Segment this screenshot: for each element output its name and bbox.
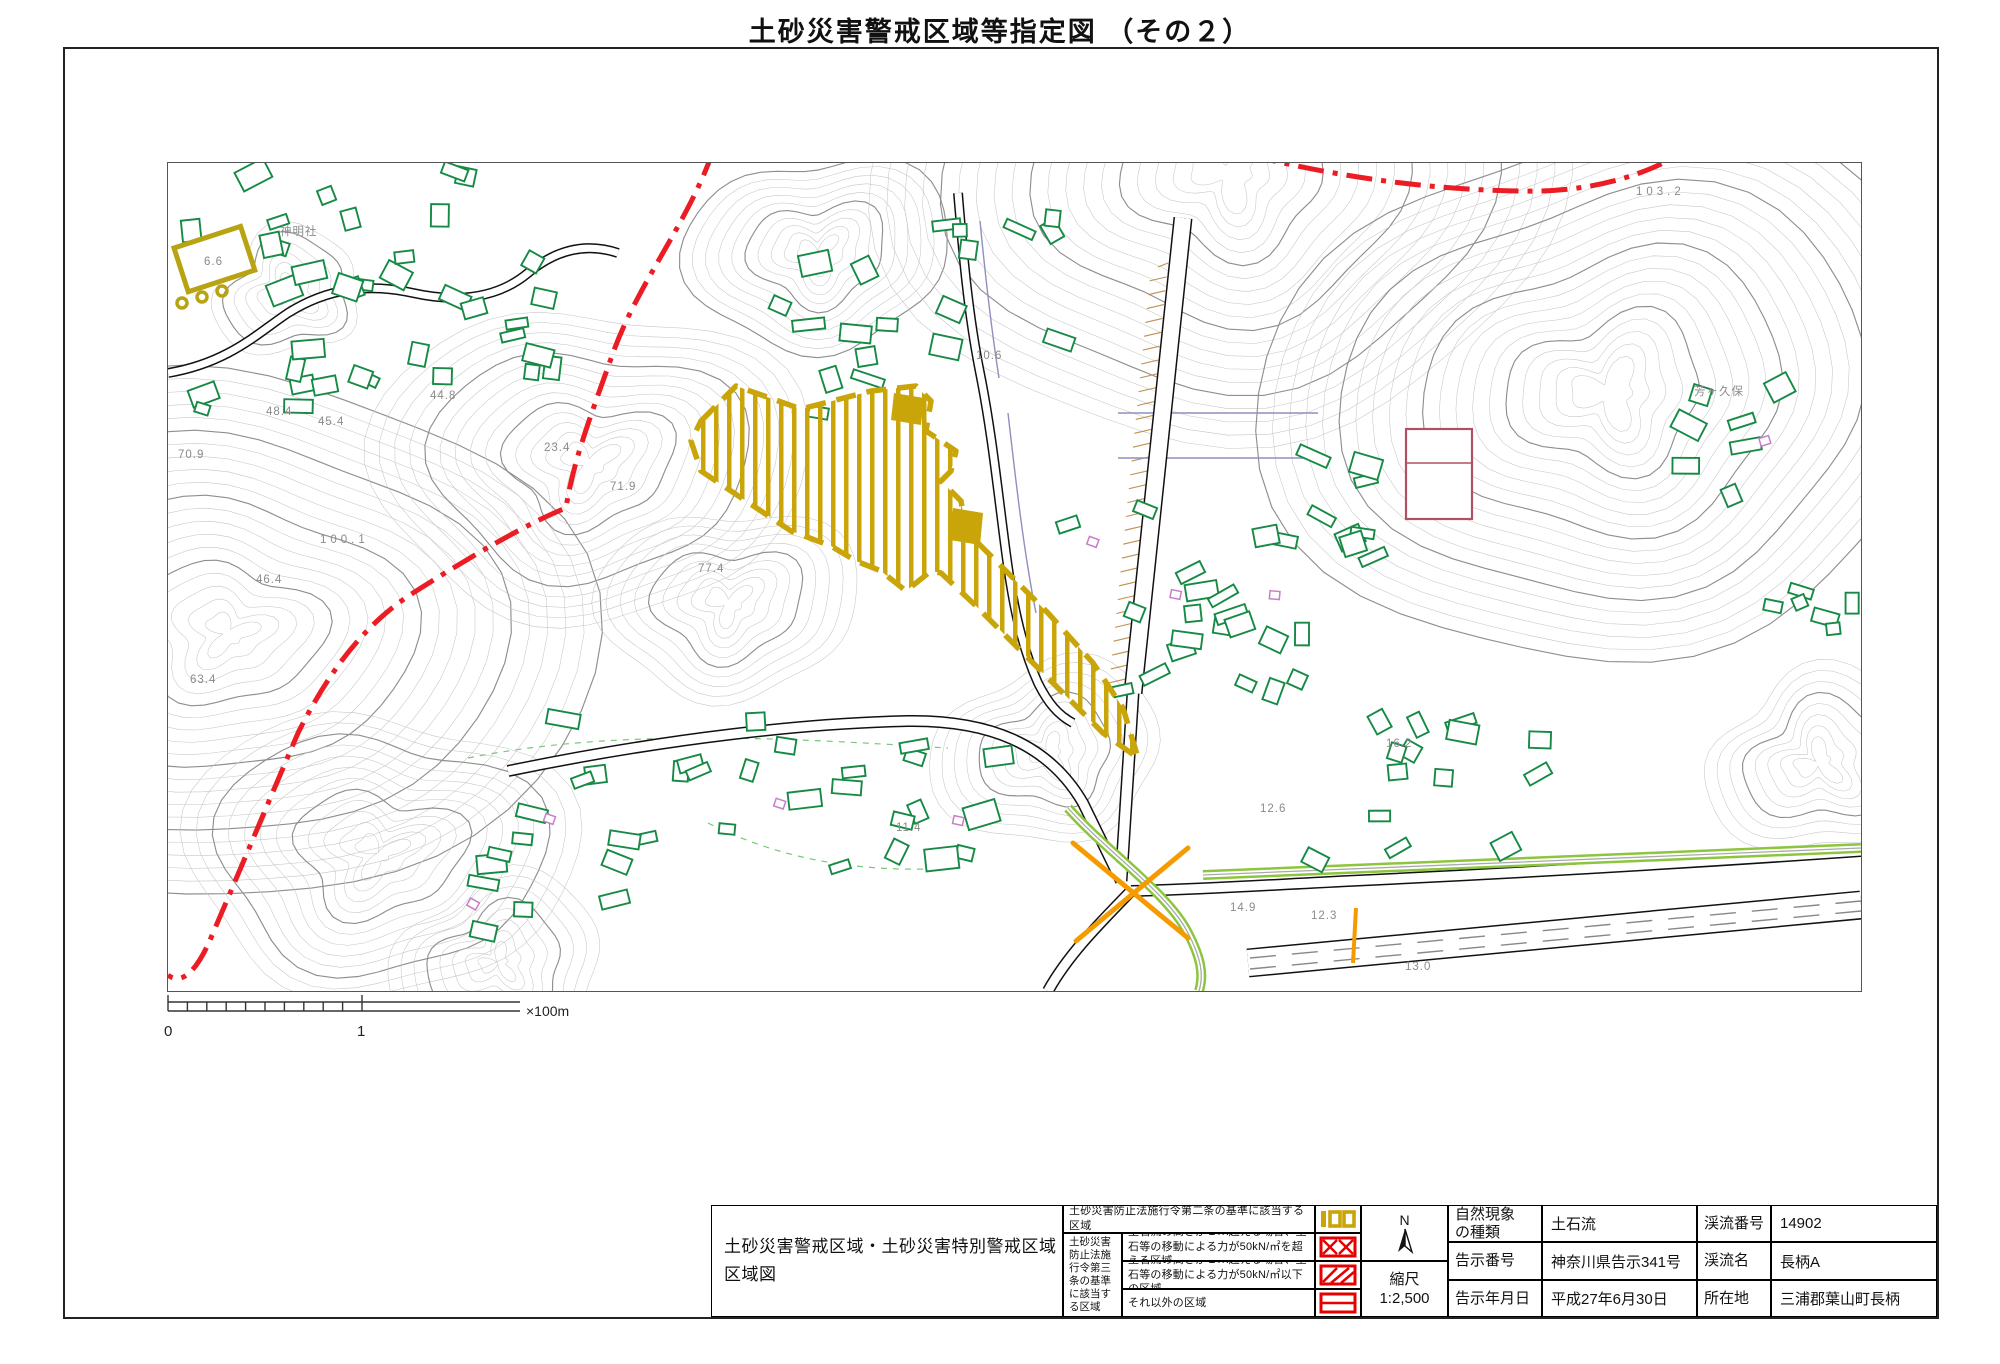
scale-bar: 0 1 ×100m xyxy=(160,992,600,1044)
notice-number-value: 神奈川県告示341号 xyxy=(1542,1242,1697,1280)
stream-number-label: 渓流番号 xyxy=(1697,1205,1771,1242)
diagonal-swatch-icon xyxy=(1319,1264,1357,1286)
map-label: 12.6 xyxy=(1260,803,1286,815)
north-arrow-icon xyxy=(1394,1228,1416,1254)
page-title: 土砂災害警戒区域等指定図 （その２） xyxy=(0,10,2000,49)
map-label: 63.4 xyxy=(190,674,216,686)
stream-number-value: 14902 xyxy=(1771,1205,1937,1242)
map-label: 23.4 xyxy=(544,442,570,454)
notice-date-label: 告示年月日 xyxy=(1448,1280,1542,1317)
north-arrow-cell: N xyxy=(1361,1205,1448,1261)
map-label: 44.8 xyxy=(430,390,456,402)
map-label: 100.1 xyxy=(320,534,369,546)
topographic-map: 103.2芳ヶ久保神明社6.648.445.444.870.9100.146.4… xyxy=(167,162,1862,992)
scale-zero-label: 0 xyxy=(164,1023,172,1040)
map-label: 45.4 xyxy=(318,416,344,428)
map-label: 11.4 xyxy=(896,822,922,834)
map-label: 10.6 xyxy=(976,350,1002,362)
map-label: 13.0 xyxy=(1405,961,1431,973)
crosshatch-swatch-icon xyxy=(1319,1236,1357,1258)
legend-info-table: 土砂災害警戒区域・土砂災害特別警戒区域 区域図 土砂災害防止法施行令第二条の基準… xyxy=(711,1205,1937,1317)
swatch-diagonal-hatch xyxy=(1315,1261,1361,1289)
map-label: 12.3 xyxy=(1311,910,1337,922)
legend-other-cell: それ以外の区域 xyxy=(1122,1289,1315,1317)
swatch-horizontal-line xyxy=(1315,1289,1361,1317)
location-label: 所在地 xyxy=(1697,1280,1771,1317)
location-value: 三浦郡葉山町長柄 xyxy=(1771,1280,1937,1317)
swatch-warning-zone xyxy=(1315,1205,1361,1233)
map-label: 6.6 xyxy=(204,256,223,268)
phenomenon-label: 自然現象 の種類 xyxy=(1448,1205,1542,1242)
legend-article2-cell: 土砂災害防止法施行令第二条の基準に該当する区域 xyxy=(1063,1205,1315,1233)
map-label: 77.4 xyxy=(698,563,724,575)
horizontal-swatch-icon xyxy=(1319,1292,1357,1314)
map-label: 芳ヶ久保 xyxy=(1694,384,1744,398)
map-label: 46.4 xyxy=(256,574,282,586)
map-label: 71.9 xyxy=(610,481,636,493)
stream-name-value: 長柄A xyxy=(1771,1242,1937,1280)
scale-value: 1:2,500 xyxy=(1379,1289,1429,1309)
map-sheet-title-line2: 区域図 xyxy=(724,1261,1057,1289)
legend-over50-cell: 土石流の高さが１ｍ超える場合、土石等の移動による力が50kN/㎡を超える区域 xyxy=(1122,1233,1315,1261)
warning-zone-swatch-icon xyxy=(1319,1208,1357,1230)
map-label: 16.2 xyxy=(1386,738,1412,750)
stream-name-label: 渓流名 xyxy=(1697,1242,1771,1280)
north-label: N xyxy=(1399,1212,1409,1228)
legend-under50-cell: 土石流の高さが１ｍ超える場合、土石等の移動による力が50kN/㎡以下の区域 xyxy=(1122,1261,1315,1289)
notice-number-label: 告示番号 xyxy=(1448,1242,1542,1280)
scale-ratio-cell: 縮尺 1:2,500 xyxy=(1361,1261,1448,1317)
legend-article3-cell: 土砂災害防止法施行令第三条の基準に該当する区域 xyxy=(1063,1233,1122,1317)
hazard-map-document: 土砂災害警戒区域等指定図 （その２） 103.2芳ヶ久保神明社6.648.445… xyxy=(0,0,2000,1364)
scale-unit-label: ×100m xyxy=(526,1003,569,1019)
map-label: 14.9 xyxy=(1230,902,1256,914)
swatch-crosshatch xyxy=(1315,1233,1361,1261)
map-canvas: 103.2芳ヶ久保神明社6.648.445.444.870.9100.146.4… xyxy=(168,163,1861,991)
notice-date-value: 平成27年6月30日 xyxy=(1542,1280,1697,1317)
map-label: 神明社 xyxy=(280,224,318,238)
map-sheet-title-line1: 土砂災害警戒区域・土砂災害特別警戒区域 xyxy=(724,1233,1057,1261)
map-label: 70.9 xyxy=(178,449,204,461)
phenomenon-value: 土石流 xyxy=(1542,1205,1697,1242)
map-label: 48.4 xyxy=(266,406,292,418)
scale-label: 縮尺 xyxy=(1389,1270,1419,1290)
map-label: 103.2 xyxy=(1636,186,1685,198)
scale-one-label: 1 xyxy=(357,1023,365,1040)
map-sheet-title-cell: 土砂災害警戒区域・土砂災害特別警戒区域 区域図 xyxy=(711,1205,1063,1317)
